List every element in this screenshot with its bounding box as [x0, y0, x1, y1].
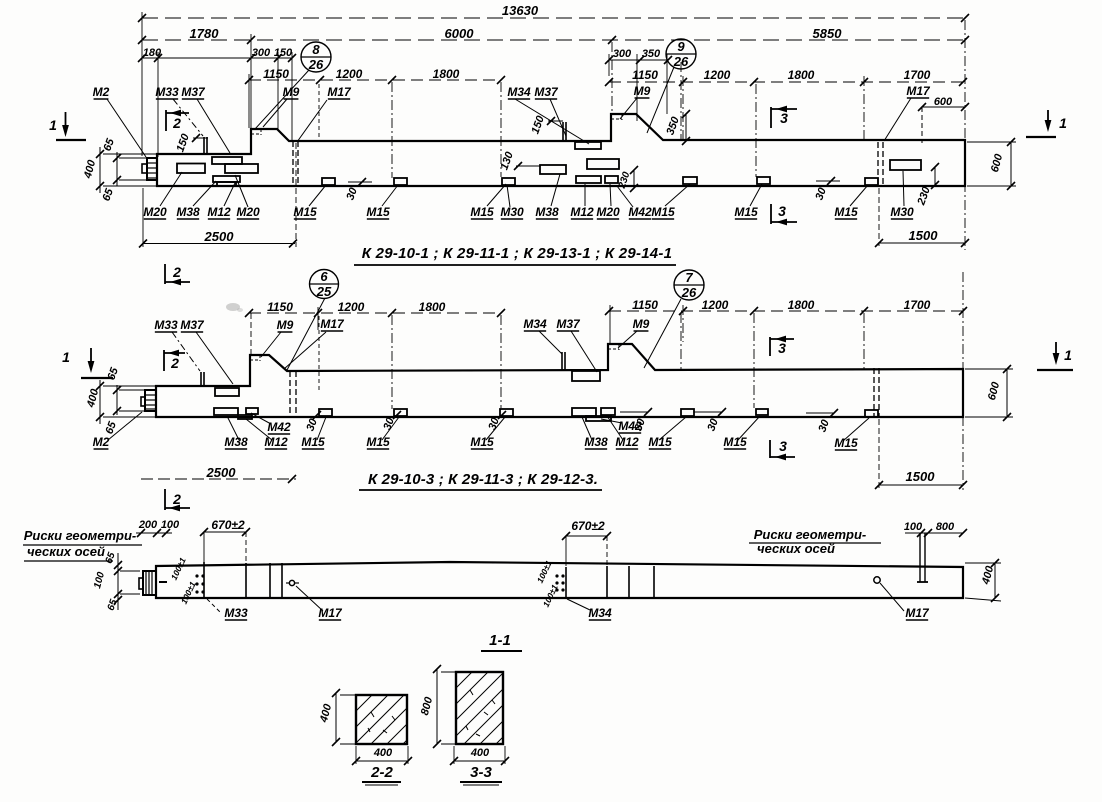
svg-text:ческих осей: ческих осей: [757, 541, 835, 556]
svg-text:3: 3: [778, 203, 786, 219]
svg-text:1800: 1800: [788, 68, 815, 82]
svg-text:400: 400: [373, 747, 393, 759]
svg-text:3: 3: [780, 110, 788, 126]
svg-text:М42: М42: [267, 420, 291, 434]
svg-text:М37: М37: [556, 317, 581, 331]
svg-text:1800: 1800: [788, 298, 815, 312]
svg-text:300: 300: [252, 47, 271, 59]
svg-text:600: 600: [934, 96, 953, 108]
svg-text:М42: М42: [628, 205, 652, 219]
svg-text:М33: М33: [224, 606, 248, 620]
svg-text:2500: 2500: [206, 465, 237, 480]
svg-text:М9: М9: [633, 317, 650, 331]
svg-text:М38: М38: [584, 435, 608, 449]
svg-text:М15: М15: [734, 205, 758, 219]
svg-text:26: 26: [681, 285, 697, 300]
svg-text:М17: М17: [318, 606, 343, 620]
svg-text:5850: 5850: [813, 26, 843, 41]
svg-text:М2: М2: [93, 85, 110, 99]
svg-text:М15: М15: [834, 205, 858, 219]
svg-text:М12: М12: [207, 205, 231, 219]
svg-text:3-3: 3-3: [470, 764, 492, 781]
svg-text:1200: 1200: [336, 67, 363, 81]
svg-text:К 29-10-1 ; К 29-11-1 ; К 29: К 29-10-1 ; К 29-11-1 ; К 29-13-1 ; К 29…: [362, 245, 673, 262]
svg-text:2500: 2500: [204, 229, 235, 244]
svg-text:2: 2: [172, 115, 181, 131]
svg-text:8: 8: [312, 42, 320, 57]
svg-text:150: 150: [274, 47, 293, 59]
svg-text:М15: М15: [651, 205, 675, 219]
svg-text:М9: М9: [277, 318, 294, 332]
svg-text:1800: 1800: [419, 300, 446, 314]
svg-text:М12: М12: [615, 435, 639, 449]
svg-text:Риски геометри-: Риски геометри-: [754, 527, 867, 542]
svg-text:М37: М37: [534, 85, 559, 99]
svg-text:300: 300: [613, 48, 632, 60]
svg-text:180: 180: [143, 47, 162, 59]
svg-text:М17: М17: [906, 84, 931, 98]
svg-text:М42: М42: [618, 419, 642, 433]
svg-text:1200: 1200: [702, 298, 729, 312]
svg-text:М15: М15: [470, 205, 494, 219]
svg-text:25: 25: [316, 284, 332, 299]
svg-text:М9: М9: [634, 84, 651, 98]
svg-text:800: 800: [936, 521, 955, 533]
svg-text:670±2: 670±2: [571, 519, 605, 533]
svg-text:М38: М38: [176, 205, 200, 219]
svg-text:М34: М34: [507, 85, 531, 99]
svg-text:М33: М33: [155, 85, 179, 99]
svg-text:М33: М33: [154, 318, 178, 332]
svg-text:1150: 1150: [632, 68, 658, 82]
svg-text:М30: М30: [500, 205, 524, 219]
svg-text:М15: М15: [648, 435, 672, 449]
svg-text:7: 7: [685, 270, 693, 285]
svg-text:100: 100: [904, 521, 923, 533]
svg-text:2: 2: [170, 355, 179, 371]
svg-text:М20: М20: [596, 205, 620, 219]
svg-text:1700: 1700: [904, 68, 931, 82]
svg-text:М38: М38: [224, 435, 248, 449]
svg-text:1200: 1200: [704, 68, 731, 82]
svg-text:Риски геометри-: Риски геометри-: [24, 528, 137, 543]
svg-text:200: 200: [138, 519, 158, 531]
svg-text:670±2: 670±2: [211, 518, 245, 532]
svg-text:М20: М20: [143, 205, 167, 219]
svg-text:М15: М15: [293, 205, 317, 219]
svg-text:1: 1: [1059, 115, 1067, 131]
svg-text:1: 1: [62, 349, 70, 365]
svg-text:ческих осей: ческих осей: [27, 544, 105, 559]
svg-text:400: 400: [470, 747, 490, 759]
svg-text:1150: 1150: [267, 300, 293, 314]
svg-text:М38: М38: [535, 205, 559, 219]
svg-text:6: 6: [320, 269, 328, 284]
svg-text:М15: М15: [301, 435, 325, 449]
svg-text:1150: 1150: [263, 67, 289, 81]
svg-text:М34: М34: [523, 317, 547, 331]
svg-text:1500: 1500: [909, 228, 939, 243]
svg-text:М15: М15: [366, 205, 390, 219]
svg-text:1780: 1780: [190, 26, 220, 41]
svg-text:2: 2: [172, 264, 181, 280]
svg-text:М20: М20: [236, 205, 260, 219]
svg-text:1500: 1500: [906, 469, 936, 484]
svg-text:М37: М37: [181, 85, 206, 99]
svg-text:2: 2: [172, 491, 181, 507]
svg-text:1-1: 1-1: [489, 632, 511, 649]
svg-text:М17: М17: [905, 606, 930, 620]
svg-text:6000: 6000: [445, 26, 475, 41]
svg-text:3: 3: [778, 340, 786, 356]
svg-text:М15: М15: [723, 435, 747, 449]
svg-text:М37: М37: [180, 318, 205, 332]
svg-text:М34: М34: [588, 606, 612, 620]
svg-text:1800: 1800: [433, 67, 460, 81]
svg-text:М17: М17: [320, 317, 345, 331]
svg-text:1200: 1200: [338, 300, 365, 314]
svg-text:М15: М15: [366, 435, 390, 449]
svg-text:2-2: 2-2: [370, 764, 393, 781]
svg-text:1: 1: [1064, 347, 1072, 363]
svg-text:1150: 1150: [632, 298, 658, 312]
svg-text:26: 26: [308, 57, 324, 72]
svg-text:М12: М12: [570, 205, 594, 219]
svg-text:13630: 13630: [502, 3, 539, 18]
svg-text:М2: М2: [93, 435, 110, 449]
svg-text:К 29-10-3 ; К 29-11-3 ; К 29: К 29-10-3 ; К 29-11-3 ; К 29-12-3.: [368, 471, 598, 488]
svg-text:М9: М9: [283, 85, 300, 99]
svg-text:9: 9: [677, 39, 685, 54]
svg-text:350: 350: [642, 48, 661, 60]
svg-text:3: 3: [779, 438, 787, 454]
svg-text:1: 1: [49, 117, 57, 133]
svg-text:М30: М30: [890, 205, 914, 219]
svg-text:М15: М15: [470, 435, 494, 449]
svg-text:М17: М17: [327, 85, 352, 99]
svg-text:100: 100: [161, 519, 180, 531]
svg-text:1700: 1700: [904, 298, 931, 312]
